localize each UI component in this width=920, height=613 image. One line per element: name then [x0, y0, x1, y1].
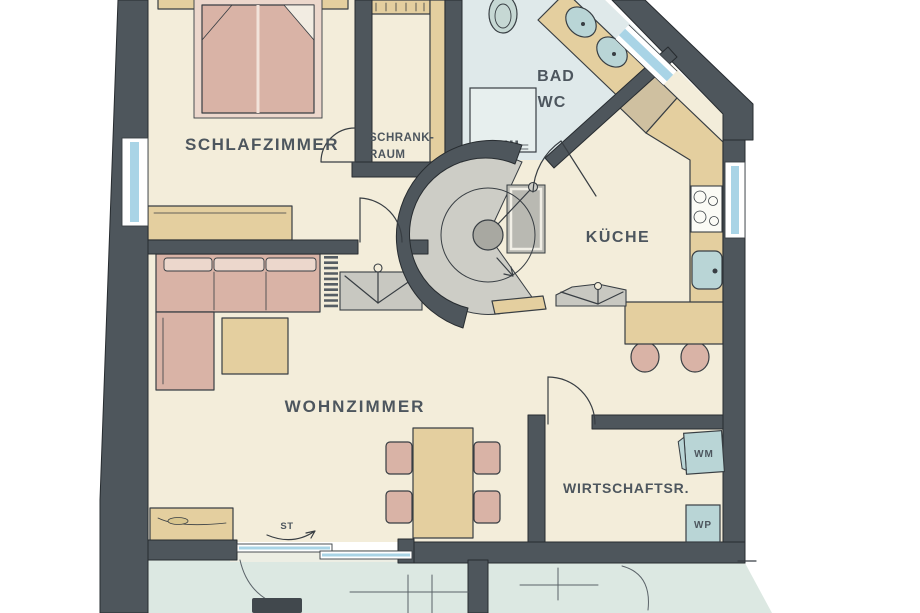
- bedroom-window: [122, 138, 148, 226]
- label-wc: WC: [538, 94, 567, 111]
- sideboard: [150, 508, 233, 542]
- label-st: ST: [280, 521, 293, 532]
- kitchen-window: [725, 162, 745, 238]
- chair: [386, 442, 412, 474]
- stair-newel: [473, 220, 503, 250]
- bar-stool: [631, 342, 659, 372]
- bedroom-dresser: [148, 206, 292, 240]
- label-wm: WM: [694, 449, 714, 460]
- toilet: [489, 0, 517, 33]
- label-schrankraum-1: SCHRANK-: [369, 132, 434, 144]
- bar-stool: [681, 342, 709, 372]
- chair: [386, 491, 412, 523]
- kitchen-sink: [692, 251, 722, 289]
- label-wohnzimmer: WOHNZIMMER: [285, 397, 426, 416]
- label-schrankraum-2: RAUM: [369, 149, 406, 161]
- label-bad: BAD: [537, 68, 575, 85]
- label-kueche: KÜCHE: [586, 227, 650, 246]
- terrace-object: [252, 598, 302, 613]
- label-wirtschaftsraum: WIRTSCHAFTSR.: [563, 480, 689, 496]
- bottom-wall: [148, 540, 237, 560]
- label-wp: WP: [694, 520, 712, 531]
- coffee-table: [222, 318, 288, 374]
- terrace-wall-stub: [468, 560, 488, 613]
- chair: [474, 491, 500, 523]
- left-wall: [100, 0, 148, 613]
- label-schlafzimmer: SCHLAFZIMMER: [185, 135, 339, 154]
- utility-wall: [592, 415, 723, 429]
- floor-plan-drawing: SCHLAFZIMMER SCHRANK- RAUM BAD WC KÜCHE …: [0, 0, 920, 613]
- bath-wall: [445, 0, 462, 162]
- chair: [474, 442, 500, 474]
- bedroom-wall: [148, 240, 358, 254]
- dining-table: [413, 428, 473, 538]
